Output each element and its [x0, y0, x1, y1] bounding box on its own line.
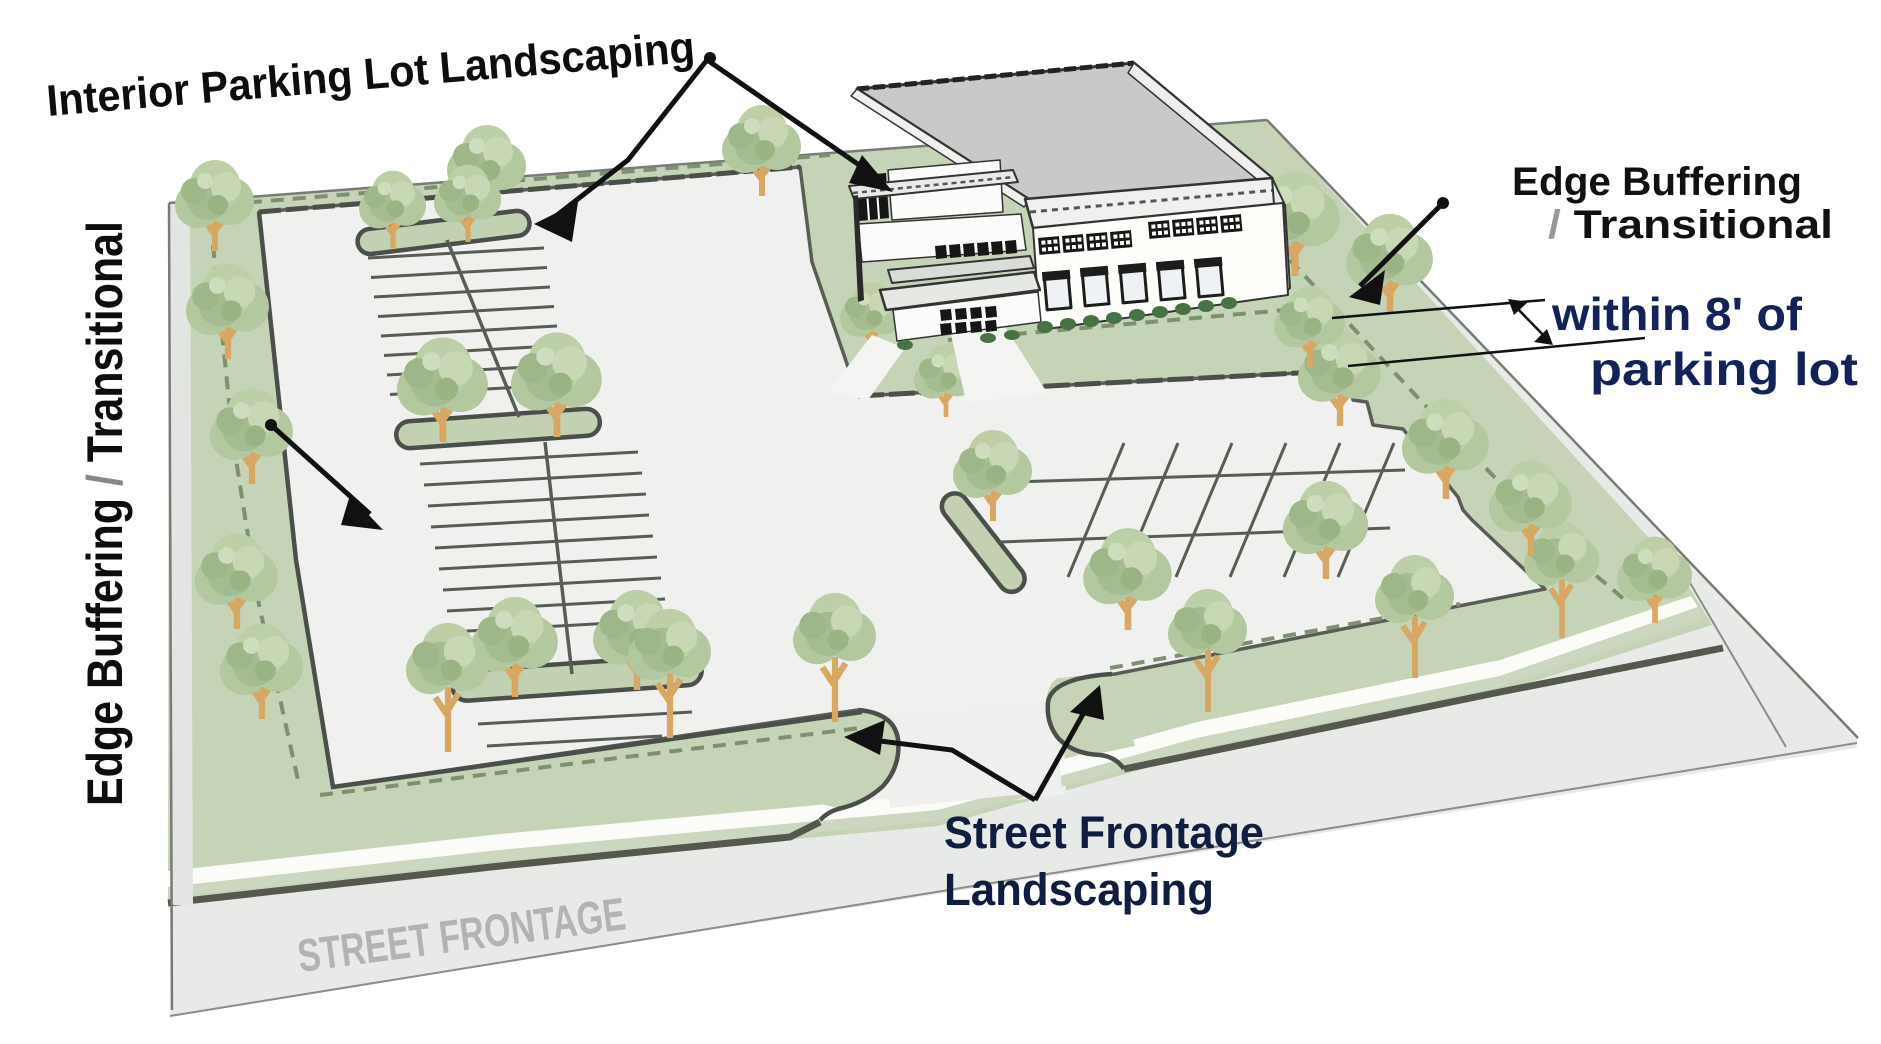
svg-text:Edge Buffering: Edge Buffering [1512, 160, 1802, 204]
svg-text:Edge Buffering / Transitional: Edge Buffering / Transitional [77, 221, 133, 806]
svg-text:Interior Parking Lot Landscapi: Interior Parking Lot Landscaping [45, 23, 697, 126]
svg-text:Street Frontage: Street Frontage [944, 807, 1264, 858]
svg-text:/ Transitional: / Transitional [1548, 203, 1833, 247]
svg-text:Landscaping: Landscaping [944, 864, 1214, 915]
svg-text:parking lot: parking lot [1590, 343, 1858, 395]
svg-text:within 8' of: within 8' of [1551, 288, 1803, 340]
